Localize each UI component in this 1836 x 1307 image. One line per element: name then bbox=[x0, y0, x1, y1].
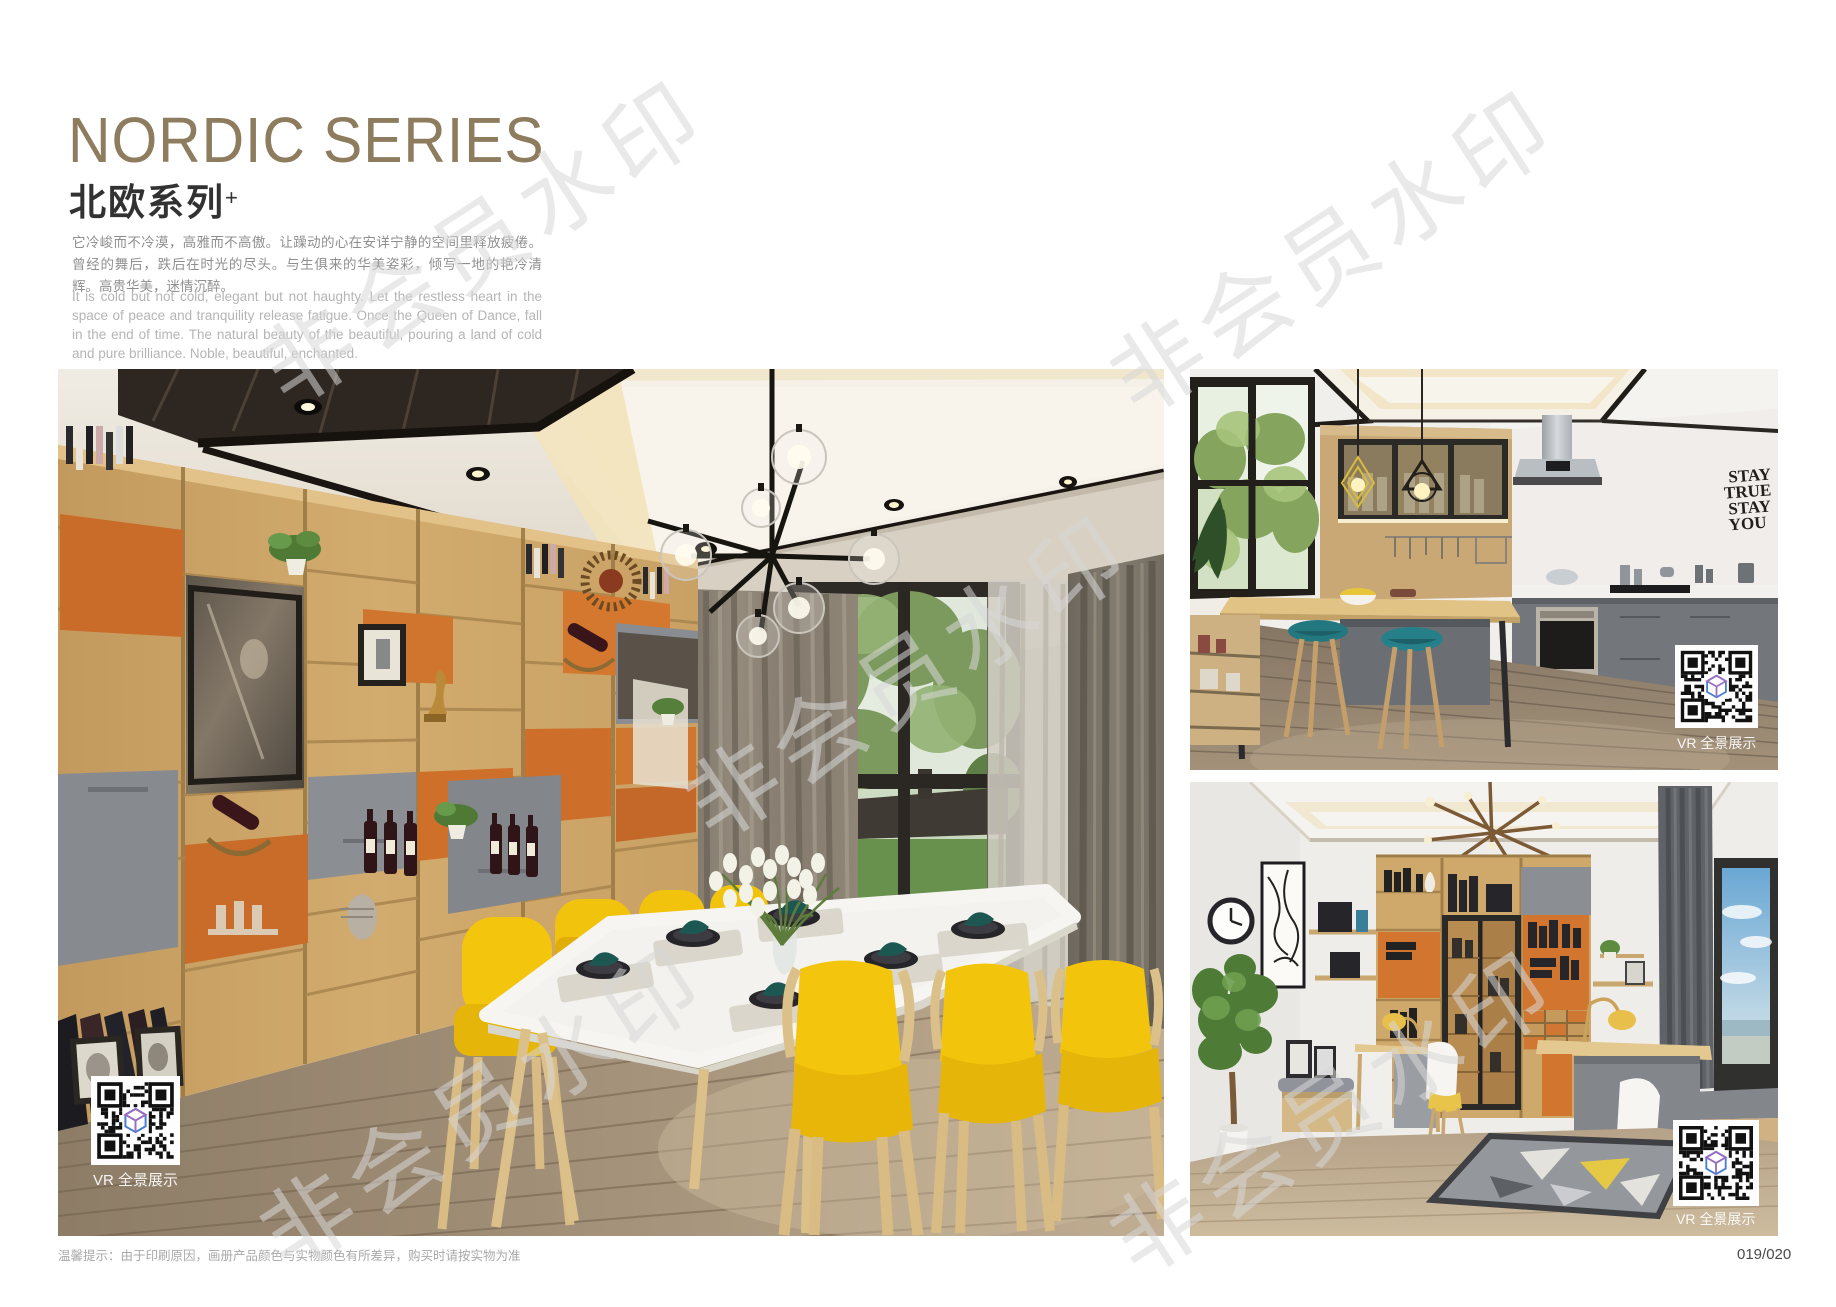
svg-text:VR 全景展示: VR 全景展示 bbox=[1677, 735, 1756, 751]
svg-text:YOU: YOU bbox=[1728, 513, 1767, 535]
svg-text:VR 全景展示: VR 全景展示 bbox=[93, 1171, 178, 1189]
svg-text:VR 全景展示: VR 全景展示 bbox=[1676, 1211, 1755, 1227]
